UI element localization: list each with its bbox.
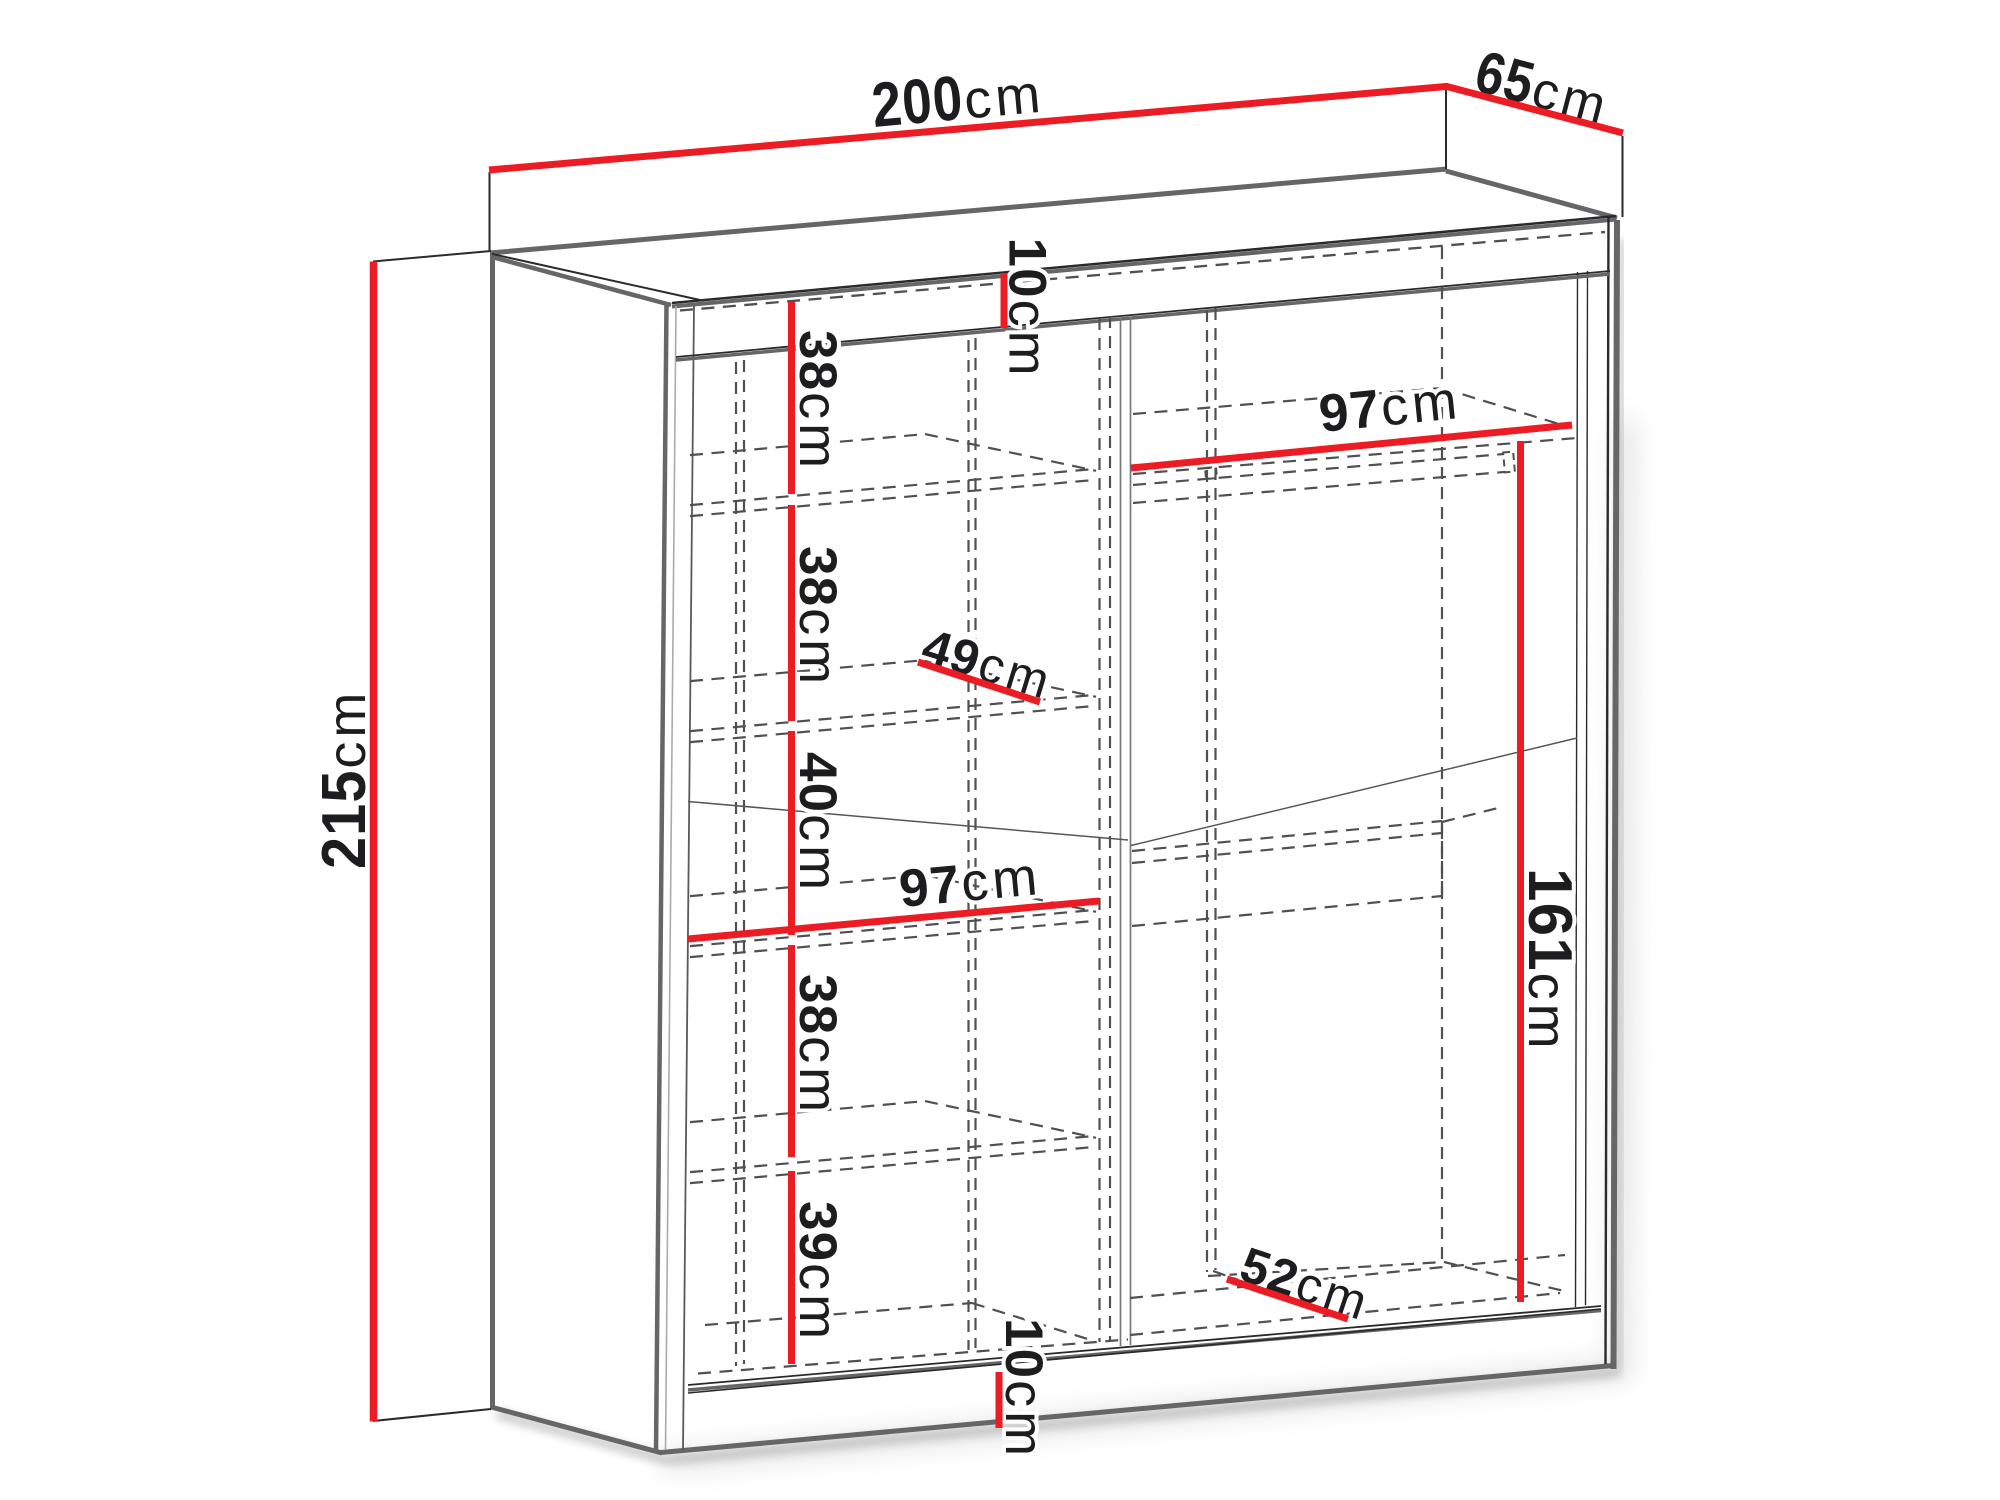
svg-text:cm: cm: [1378, 370, 1464, 438]
svg-text:cm: cm: [788, 608, 848, 688]
svg-text:cm: cm: [788, 392, 848, 472]
svg-text:cm: cm: [994, 1380, 1054, 1460]
svg-text:97: 97: [1316, 379, 1383, 444]
svg-text:cm: cm: [788, 1036, 848, 1116]
svg-text:cm: cm: [958, 846, 1043, 913]
svg-text:39: 39: [788, 1201, 847, 1262]
svg-text:cm: cm: [788, 814, 848, 894]
svg-text:40: 40: [788, 752, 847, 813]
svg-text:cm: cm: [317, 689, 377, 769]
svg-text:10: 10: [994, 1318, 1053, 1379]
svg-text:161: 161: [1516, 868, 1585, 972]
svg-text:97: 97: [897, 855, 964, 919]
svg-text:215: 215: [309, 769, 378, 869]
svg-text:38: 38: [788, 974, 847, 1035]
svg-text:cm: cm: [1517, 973, 1577, 1053]
svg-text:38: 38: [788, 330, 847, 391]
svg-text:38: 38: [788, 546, 847, 607]
svg-text:cm: cm: [788, 1263, 848, 1343]
